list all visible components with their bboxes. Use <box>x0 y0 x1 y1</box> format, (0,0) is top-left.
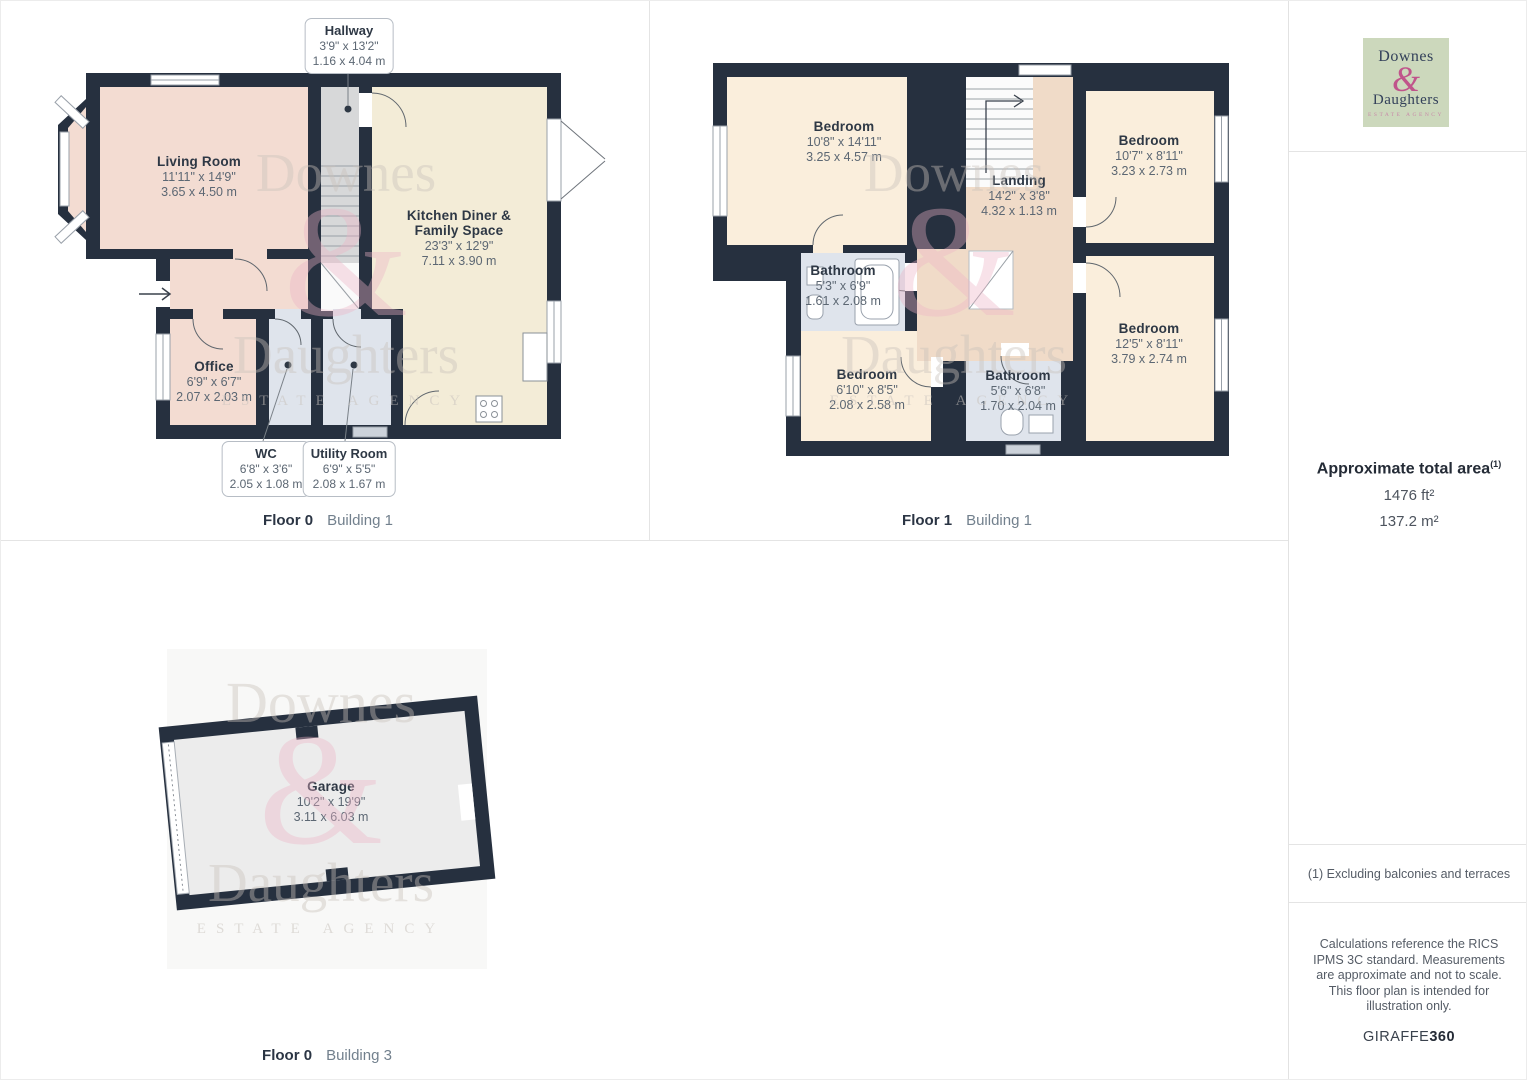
caption-plan3: Floor 0Building 3 <box>262 1047 392 1064</box>
logo-ampersand: & <box>1392 66 1420 92</box>
room-label-living: Living Room 11'11" x 14'9" 3.65 x 4.50 m <box>157 154 241 199</box>
callout-hallway: Hallway 3'9" x 13'2" 1.16 x 4.04 m <box>305 18 394 74</box>
plan2-drawing <box>649 1 1289 540</box>
entry-arrow-icon <box>139 288 170 300</box>
sidebar-divider-2 <box>1289 844 1527 845</box>
area-footnote: (1) Excluding balconies and terraces <box>1299 867 1519 881</box>
room-label-garage: Garage 10'2" x 19'9" 3.11 x 6.03 m <box>294 779 369 824</box>
callout-wc: WC 6'8" x 3'6" 2.05 x 1.08 m <box>222 441 311 497</box>
sidebar-divider-1 <box>1289 151 1527 152</box>
room-label-bathroom-center: Bathroom 5'6" x 6'8" 1.70 x 2.04 m <box>980 368 1056 413</box>
total-area-title: Approximate total area(1) <box>1289 459 1527 478</box>
room-label-bedroom-right: Bedroom 12'5" x 8'11" 3.79 x 2.74 m <box>1111 321 1187 366</box>
total-area-block: Approximate total area(1) 1476 ft² 137.2… <box>1289 459 1527 530</box>
footnote-marker: (1) <box>1490 459 1501 469</box>
plan1-french-doors <box>561 121 605 199</box>
callout-utility: Utility Room 6'9" x 5'5" 2.08 x 1.67 m <box>303 441 396 497</box>
sidebar-divider-3 <box>1289 902 1527 903</box>
disclaimer-text: Calculations reference the RICS IPMS 3C … <box>1311 937 1507 1015</box>
room-label-bedroom-bl: Bedroom 6'10" x 8'5" 2.08 x 2.58 m <box>829 367 905 412</box>
room-label-bedroom-tr: Bedroom 10'7" x 8'11" 3.23 x 2.73 m <box>1111 133 1187 178</box>
agency-logo: Downes & Daughters ESTATE AGENCY <box>1363 38 1449 127</box>
room-label-bedroom-tl: Bedroom 10'8" x 14'11" 3.25 x 4.57 m <box>806 119 882 164</box>
room-label-bathroom-left: Bathroom 5'3" x 6'9" 1.61 x 2.08 m <box>805 263 881 308</box>
room-label-office: Office 6'9" x 6'7" 2.07 x 2.03 m <box>176 359 252 404</box>
logo-tagline: ESTATE AGENCY <box>1368 112 1444 118</box>
total-area-metric: 137.2 m² <box>1289 513 1527 530</box>
caption-plan2: Floor 1Building 1 <box>902 512 1032 529</box>
room-label-landing: Landing 14'2" x 3'8" 4.32 x 1.13 m <box>981 173 1057 218</box>
total-area-imperial: 1476 ft² <box>1289 487 1527 504</box>
caption-plan1: Floor 0Building 1 <box>263 512 393 529</box>
info-sidebar: Downes & Daughters ESTATE AGENCY Approxi… <box>1288 1 1527 1080</box>
floorplan-page: Downes & Daughters ESTATE AGENCY Hallway… <box>0 0 1527 1080</box>
room-label-kitchen: Kitchen Diner & Family Space 23'3" x 12'… <box>389 208 529 268</box>
giraffe360-brand: GIRAFFE360 <box>1289 1029 1527 1045</box>
